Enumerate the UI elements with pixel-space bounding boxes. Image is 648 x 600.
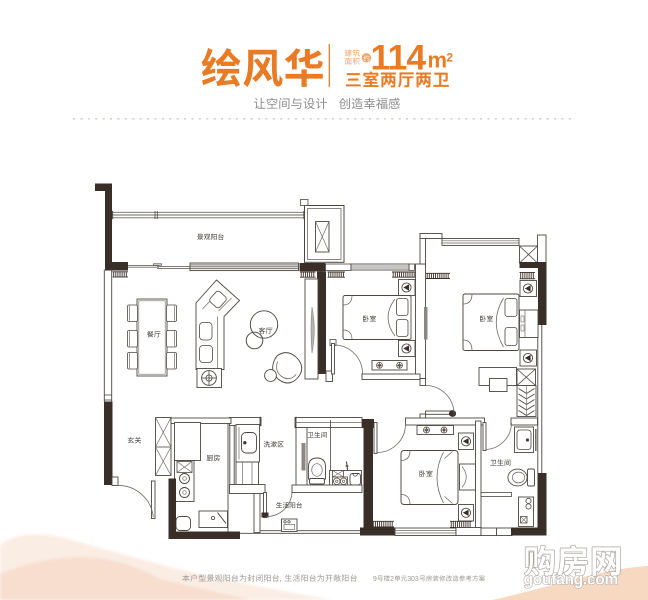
svg-text:m: m (428, 48, 448, 73)
svg-text:2: 2 (390, 576, 394, 583)
svg-text:9: 9 (373, 576, 377, 583)
svg-text:,: , (280, 574, 282, 583)
svg-text:2: 2 (447, 53, 453, 65)
svg-text:goufang.com: goufang.com (524, 572, 619, 589)
svg-text:114: 114 (371, 37, 427, 77)
svg-text:303: 303 (407, 576, 419, 583)
